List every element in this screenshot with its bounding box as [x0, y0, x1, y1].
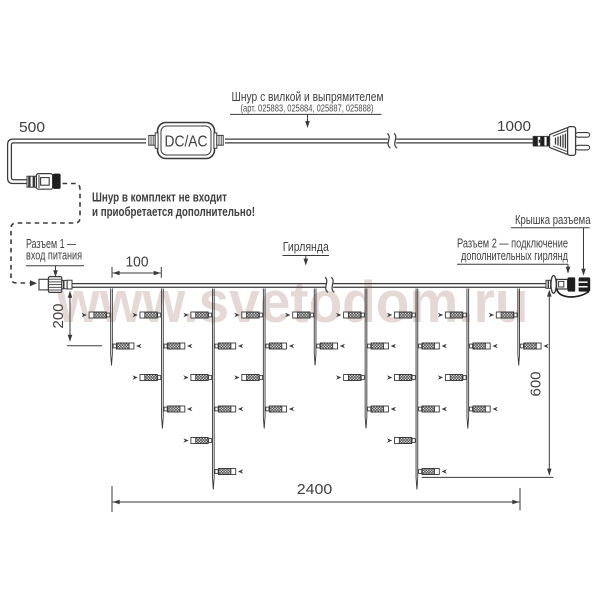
svg-text:1000: 1000 [497, 118, 531, 135]
svg-text:(арт. 025883, 025884, 025887,: (арт. 025883, 025884, 025887, 025888) [241, 104, 374, 115]
svg-text:500: 500 [19, 119, 45, 136]
svg-text:дополнительных гирлянд: дополнительных гирлянд [461, 248, 568, 263]
svg-text:Шнур в комплект не входит: Шнур в комплект не входит [92, 190, 227, 205]
svg-text:www.svetodom.ru: www.svetodom.ru [56, 270, 528, 335]
svg-text:Гирлянда: Гирлянда [283, 239, 330, 254]
svg-text:Шнур с вилкой и выпрямителем: Шнур с вилкой и выпрямителем [232, 89, 384, 104]
svg-text:и приобретается дополнительно!: и приобретается дополнительно! [92, 204, 255, 219]
svg-text:2400: 2400 [297, 481, 333, 498]
svg-text:DC/AC: DC/AC [165, 134, 208, 151]
svg-text:Крышка разъема: Крышка разъема [515, 212, 591, 227]
svg-text:600: 600 [527, 372, 544, 397]
svg-text:200: 200 [50, 304, 67, 329]
svg-text:100: 100 [126, 253, 149, 270]
svg-text:вход питания: вход питания [26, 247, 82, 262]
